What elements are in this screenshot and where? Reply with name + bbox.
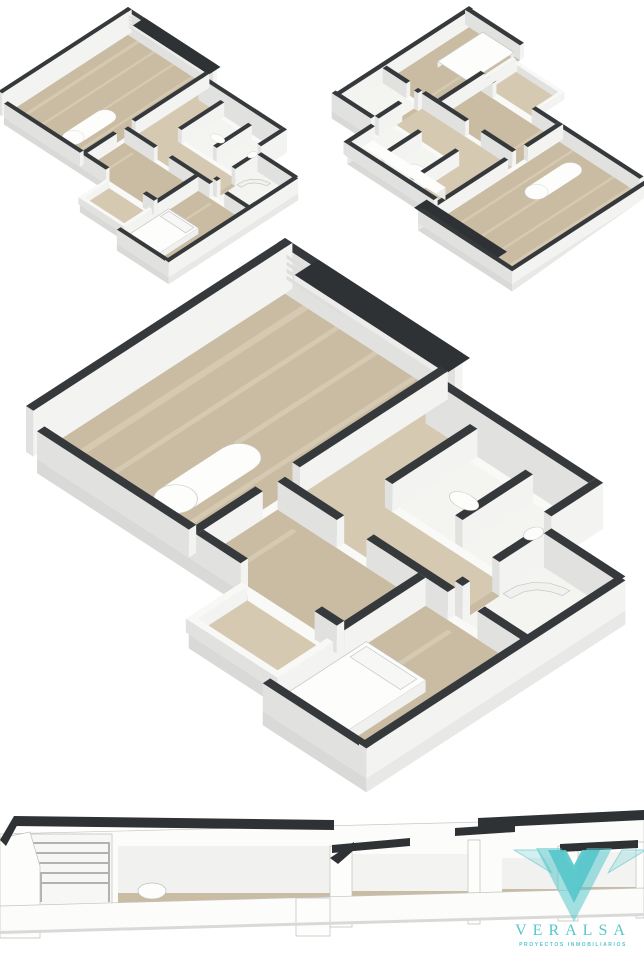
brand-name: VERALSA [502,922,644,940]
logo-right-wing-icon [608,850,644,873]
veralsa-logo-mark [0,0,644,960]
brand-tagline: PROYECTOS INMOBILIARIOS [502,942,644,948]
real-estate-floorplan-sheet: VERALSA PROYECTOS INMOBILIARIOS [0,0,644,960]
brand-block: VERALSA PROYECTOS INMOBILIARIOS [502,922,644,948]
